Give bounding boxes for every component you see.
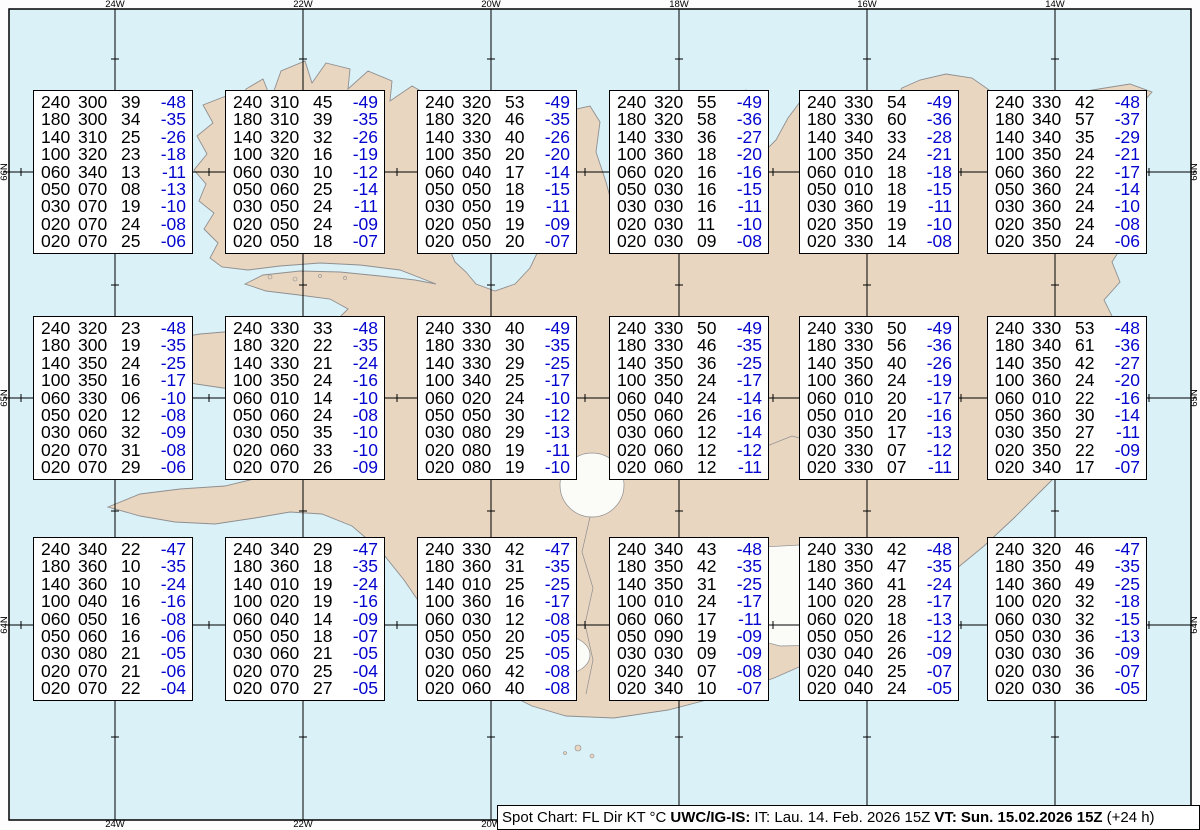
wind-dir-value: 040 bbox=[654, 390, 697, 407]
wind-dir-value: 010 bbox=[844, 390, 887, 407]
fl-value: 020 bbox=[617, 680, 654, 697]
fl-value: 030 bbox=[233, 424, 270, 441]
temperature-value: -20 bbox=[1106, 372, 1140, 389]
spot-row: 03005035-10 bbox=[233, 424, 378, 441]
wind-dir-value: 360 bbox=[462, 593, 505, 610]
fl-value: 030 bbox=[425, 645, 462, 662]
temperature-value: -35 bbox=[536, 558, 570, 575]
wind-speed-value: 09 bbox=[697, 645, 728, 662]
wind-dir-value: 340 bbox=[1032, 111, 1075, 128]
fl-value: 100 bbox=[425, 593, 462, 610]
wind-dir-value: 060 bbox=[654, 611, 697, 628]
spot-row: 10035020-20 bbox=[425, 146, 570, 163]
wind-speed-value: 61 bbox=[1075, 337, 1106, 354]
wind-dir-value: 320 bbox=[78, 146, 121, 163]
wind-dir-value: 030 bbox=[654, 233, 697, 250]
spot-row: 03035027-11 bbox=[995, 424, 1140, 441]
station-data-box: 24033042-4718036031-3514001025-251003601… bbox=[417, 537, 577, 701]
wind-speed-value: 24 bbox=[1075, 146, 1106, 163]
fl-value: 060 bbox=[41, 611, 78, 628]
temperature-value: -21 bbox=[1106, 146, 1140, 163]
temperature-value: -11 bbox=[728, 459, 762, 476]
temperature-value: -17 bbox=[728, 593, 762, 610]
temperature-value: -17 bbox=[918, 593, 952, 610]
temperature-value: -07 bbox=[728, 680, 762, 697]
wind-speed-value: 27 bbox=[313, 680, 344, 697]
wind-speed-value: 14 bbox=[887, 233, 918, 250]
spot-row: 02003009-08 bbox=[617, 233, 762, 250]
fl-value: 180 bbox=[425, 111, 462, 128]
longitude-label-bottom: 22W bbox=[286, 819, 320, 830]
spot-row: 03006012-14 bbox=[617, 424, 762, 441]
wind-speed-value: 20 bbox=[505, 146, 536, 163]
fl-value: 030 bbox=[995, 198, 1032, 215]
wind-dir-value: 330 bbox=[844, 233, 887, 250]
wind-speed-value: 26 bbox=[313, 459, 344, 476]
temperature-value: -11 bbox=[918, 459, 952, 476]
wind-dir-value: 070 bbox=[78, 680, 121, 697]
fl-value: 030 bbox=[617, 645, 654, 662]
wind-dir-value: 020 bbox=[844, 593, 887, 610]
temperature-value: -14 bbox=[728, 390, 762, 407]
fl-value: 100 bbox=[617, 372, 654, 389]
longitude-label-top: 14W bbox=[1038, 0, 1072, 10]
wind-dir-value: 040 bbox=[462, 164, 505, 181]
wind-speed-value: 14 bbox=[313, 611, 344, 628]
wind-dir-value: 350 bbox=[654, 558, 697, 575]
temperature-value: -12 bbox=[344, 164, 378, 181]
wind-dir-value: 070 bbox=[78, 459, 121, 476]
fl-value: 100 bbox=[233, 146, 270, 163]
fl-value: 020 bbox=[41, 233, 78, 250]
fl-value: 020 bbox=[807, 233, 844, 250]
wind-dir-value: 020 bbox=[844, 611, 887, 628]
spot-row: 18030034-35 bbox=[41, 111, 186, 128]
wind-speed-value: 19 bbox=[505, 198, 536, 215]
fl-value: 060 bbox=[807, 164, 844, 181]
wind-dir-value: 330 bbox=[844, 337, 887, 354]
wind-speed-value: 58 bbox=[697, 111, 728, 128]
fl-value: 060 bbox=[425, 164, 462, 181]
temperature-value: -17 bbox=[728, 372, 762, 389]
station-data-box: 24033054-4918033060-3614034033-281003502… bbox=[799, 90, 959, 254]
fl-value: 180 bbox=[425, 337, 462, 354]
temperature-value: -14 bbox=[536, 164, 570, 181]
wind-speed-value: 19 bbox=[121, 198, 152, 215]
spot-row: 10002032-18 bbox=[995, 593, 1140, 610]
fl-value: 060 bbox=[617, 611, 654, 628]
fl-value: 100 bbox=[807, 146, 844, 163]
longitude-label-top: 22W bbox=[286, 0, 320, 10]
temperature-value: -35 bbox=[1106, 558, 1140, 575]
wind-speed-value: 21 bbox=[313, 645, 344, 662]
wind-dir-value: 320 bbox=[270, 337, 313, 354]
wind-dir-value: 050 bbox=[78, 611, 121, 628]
spot-row: 03003016-11 bbox=[617, 198, 762, 215]
wind-speed-value: 22 bbox=[1075, 164, 1106, 181]
temperature-value: -11 bbox=[728, 611, 762, 628]
wind-speed-value: 30 bbox=[505, 337, 536, 354]
temperature-value: -17 bbox=[152, 372, 186, 389]
wind-speed-value: 36 bbox=[1075, 645, 1106, 662]
temperature-value: -05 bbox=[1106, 680, 1140, 697]
wind-dir-value: 040 bbox=[78, 593, 121, 610]
wind-speed-value: 32 bbox=[121, 424, 152, 441]
spot-row: 10035024-21 bbox=[995, 146, 1140, 163]
longitude-label-top: 18W bbox=[662, 0, 696, 10]
station-data-box: 24033033-4818032022-3514033021-241003502… bbox=[225, 316, 385, 480]
wind-dir-value: 020 bbox=[270, 593, 313, 610]
wind-dir-value: 080 bbox=[78, 645, 121, 662]
spot-row: 02006040-08 bbox=[425, 680, 570, 697]
wind-speed-value: 16 bbox=[121, 372, 152, 389]
fl-value: 020 bbox=[807, 680, 844, 697]
spot-row: 06004017-14 bbox=[425, 164, 570, 181]
spot-row: 18030019-35 bbox=[41, 337, 186, 354]
fl-value: 030 bbox=[617, 424, 654, 441]
temperature-value: -35 bbox=[152, 111, 186, 128]
spot-row: 18033046-35 bbox=[617, 337, 762, 354]
wind-speed-value: 16 bbox=[121, 593, 152, 610]
wind-speed-value: 16 bbox=[505, 593, 536, 610]
wind-dir-value: 050 bbox=[270, 198, 313, 215]
wind-dir-value: 070 bbox=[78, 233, 121, 250]
wind-speed-value: 32 bbox=[1075, 593, 1106, 610]
wind-dir-value: 320 bbox=[462, 111, 505, 128]
wind-dir-value: 030 bbox=[462, 611, 505, 628]
wind-speed-value: 10 bbox=[313, 164, 344, 181]
spot-row: 03036019-11 bbox=[807, 198, 952, 215]
caption-suffix: (+24 h) bbox=[1107, 809, 1155, 826]
fl-value: 060 bbox=[995, 164, 1032, 181]
fl-value: 180 bbox=[233, 111, 270, 128]
spot-row: 10035024-16 bbox=[233, 372, 378, 389]
temperature-value: -11 bbox=[536, 198, 570, 215]
wind-dir-value: 040 bbox=[844, 645, 887, 662]
wind-speed-value: 19 bbox=[313, 593, 344, 610]
wind-dir-value: 350 bbox=[270, 372, 313, 389]
wind-speed-value: 25 bbox=[121, 233, 152, 250]
spot-row: 03006032-09 bbox=[41, 424, 186, 441]
wind-speed-value: 18 bbox=[313, 233, 344, 250]
wind-dir-value: 300 bbox=[78, 111, 121, 128]
caption-valid-value: Sun. 15.02.2026 15Z bbox=[961, 809, 1103, 826]
wind-dir-value: 050 bbox=[462, 645, 505, 662]
wind-dir-value: 070 bbox=[270, 459, 313, 476]
spot-row: 18035047-35 bbox=[807, 558, 952, 575]
spot-row: 06004014-09 bbox=[233, 611, 378, 628]
spot-row: 10001024-17 bbox=[617, 593, 762, 610]
wind-speed-value: 34 bbox=[121, 111, 152, 128]
temperature-value: -09 bbox=[344, 459, 378, 476]
latitude-label-left: 64N bbox=[0, 612, 11, 638]
wind-dir-value: 010 bbox=[270, 390, 313, 407]
wind-dir-value: 350 bbox=[78, 372, 121, 389]
fl-value: 030 bbox=[41, 645, 78, 662]
wind-dir-value: 320 bbox=[654, 111, 697, 128]
fl-value: 180 bbox=[807, 337, 844, 354]
wind-dir-value: 360 bbox=[844, 198, 887, 215]
temperature-value: -17 bbox=[536, 372, 570, 389]
fl-value: 180 bbox=[41, 111, 78, 128]
spot-row: 02033007-11 bbox=[807, 459, 952, 476]
wind-dir-value: 350 bbox=[844, 424, 887, 441]
temperature-value: -18 bbox=[152, 146, 186, 163]
fl-value: 100 bbox=[995, 146, 1032, 163]
wind-speed-value: 28 bbox=[887, 593, 918, 610]
wind-dir-value: 350 bbox=[654, 372, 697, 389]
temperature-value: -09 bbox=[344, 611, 378, 628]
wind-dir-value: 020 bbox=[462, 390, 505, 407]
wind-speed-value: 25 bbox=[505, 645, 536, 662]
wind-speed-value: 16 bbox=[313, 146, 344, 163]
latitude-label-right: 66N bbox=[1189, 159, 1200, 185]
fl-value: 060 bbox=[807, 611, 844, 628]
spot-row: 10004016-16 bbox=[41, 593, 186, 610]
wind-dir-value: 360 bbox=[844, 372, 887, 389]
latitude-label-right: 65N bbox=[1189, 385, 1200, 411]
wind-dir-value: 020 bbox=[1032, 593, 1075, 610]
fl-value: 020 bbox=[233, 233, 270, 250]
station-data-box: 24032023-4818030019-3514035024-251003501… bbox=[33, 316, 193, 480]
temperature-value: -10 bbox=[536, 390, 570, 407]
wind-dir-value: 040 bbox=[844, 680, 887, 697]
station-data-box: 24034043-4818035042-3514035031-251000102… bbox=[609, 537, 769, 701]
spot-row: 06001018-18 bbox=[807, 164, 952, 181]
wind-dir-value: 360 bbox=[462, 558, 505, 575]
wind-speed-value: 24 bbox=[697, 593, 728, 610]
caption-issued: IT: Lau. 14. Feb. 2026 15Z bbox=[754, 809, 930, 826]
temperature-value: -07 bbox=[1106, 459, 1140, 476]
temperature-value: -11 bbox=[728, 198, 762, 215]
spot-row: 02035024-06 bbox=[995, 233, 1140, 250]
temperature-value: -07 bbox=[344, 233, 378, 250]
fl-value: 180 bbox=[41, 558, 78, 575]
temperature-value: -16 bbox=[344, 593, 378, 610]
wind-dir-value: 030 bbox=[654, 645, 697, 662]
wind-speed-value: 10 bbox=[697, 680, 728, 697]
fl-value: 020 bbox=[233, 680, 270, 697]
fl-value: 100 bbox=[425, 372, 462, 389]
temperature-value: -04 bbox=[152, 680, 186, 697]
station-data-box: 24033050-4918033056-3614035040-261003602… bbox=[799, 316, 959, 480]
spot-row: 06002016-16 bbox=[617, 164, 762, 181]
spot-row: 10035024-21 bbox=[807, 146, 952, 163]
wind-speed-value: 06 bbox=[121, 390, 152, 407]
fl-value: 030 bbox=[233, 198, 270, 215]
wind-speed-value: 12 bbox=[697, 424, 728, 441]
temperature-value: -06 bbox=[1106, 233, 1140, 250]
wind-speed-value: 31 bbox=[505, 558, 536, 575]
station-data-box: 24033042-4818034057-3714034035-291003502… bbox=[987, 90, 1147, 254]
wind-dir-value: 070 bbox=[270, 680, 313, 697]
wind-speed-value: 19 bbox=[887, 198, 918, 215]
temperature-value: -35 bbox=[152, 337, 186, 354]
temperature-value: -37 bbox=[1106, 111, 1140, 128]
wind-dir-value: 350 bbox=[1032, 146, 1075, 163]
latitude-label-left: 65N bbox=[0, 385, 11, 411]
temperature-value: -11 bbox=[344, 198, 378, 215]
temperature-value: -10 bbox=[344, 424, 378, 441]
station-data-box: 24033053-4818034061-3614035042-271003602… bbox=[987, 316, 1147, 480]
wind-dir-value: 340 bbox=[462, 372, 505, 389]
station-data-box: 24030039-4818030034-3514031025-261003202… bbox=[33, 90, 193, 254]
wind-speed-value: 24 bbox=[1075, 198, 1106, 215]
wind-speed-value: 12 bbox=[697, 459, 728, 476]
wind-dir-value: 300 bbox=[78, 337, 121, 354]
spot-row: 18034061-36 bbox=[995, 337, 1140, 354]
temperature-value: -05 bbox=[344, 680, 378, 697]
temperature-value: -17 bbox=[536, 593, 570, 610]
spot-row: 18033060-36 bbox=[807, 111, 952, 128]
temperature-value: -05 bbox=[918, 680, 952, 697]
temperature-value: -18 bbox=[1106, 593, 1140, 610]
fl-value: 100 bbox=[807, 372, 844, 389]
wind-dir-value: 020 bbox=[654, 164, 697, 181]
spot-row: 10035016-17 bbox=[41, 372, 186, 389]
temperature-value: -15 bbox=[1106, 611, 1140, 628]
wind-speed-value: 13 bbox=[121, 164, 152, 181]
spot-row: 03003036-09 bbox=[995, 645, 1140, 662]
wind-speed-value: 36 bbox=[1075, 680, 1106, 697]
wind-dir-value: 350 bbox=[1032, 424, 1075, 441]
latitude-label-left: 66N bbox=[0, 159, 11, 185]
temperature-value: -09 bbox=[1106, 645, 1140, 662]
wind-speed-value: 22 bbox=[313, 337, 344, 354]
wind-speed-value: 27 bbox=[1075, 424, 1106, 441]
wind-speed-value: 60 bbox=[887, 111, 918, 128]
wind-speed-value: 24 bbox=[1075, 372, 1106, 389]
fl-value: 180 bbox=[617, 337, 654, 354]
spot-row: 06033006-10 bbox=[41, 390, 186, 407]
fl-value: 020 bbox=[995, 680, 1032, 697]
fl-value: 180 bbox=[995, 558, 1032, 575]
spot-row: 02007029-06 bbox=[41, 459, 186, 476]
wind-speed-value: 23 bbox=[121, 146, 152, 163]
wind-dir-value: 060 bbox=[462, 680, 505, 697]
wind-speed-value: 14 bbox=[313, 390, 344, 407]
spot-row: 06034013-11 bbox=[41, 164, 186, 181]
wind-speed-value: 18 bbox=[887, 164, 918, 181]
wind-speed-value: 20 bbox=[505, 233, 536, 250]
wind-dir-value: 030 bbox=[1032, 680, 1075, 697]
fl-value: 180 bbox=[233, 558, 270, 575]
fl-value: 060 bbox=[233, 164, 270, 181]
wind-speed-value: 10 bbox=[121, 558, 152, 575]
wind-dir-value: 360 bbox=[1032, 164, 1075, 181]
fl-value: 030 bbox=[41, 424, 78, 441]
spot-row: 10036018-20 bbox=[617, 146, 762, 163]
station-data-box: 24032053-4918032046-3514033040-261003502… bbox=[417, 90, 577, 254]
wind-speed-value: 39 bbox=[313, 111, 344, 128]
wind-speed-value: 21 bbox=[121, 645, 152, 662]
fl-value: 030 bbox=[233, 645, 270, 662]
wind-speed-value: 56 bbox=[887, 337, 918, 354]
wind-speed-value: 16 bbox=[697, 198, 728, 215]
wind-speed-value: 29 bbox=[121, 459, 152, 476]
spot-row: 02034017-07 bbox=[995, 459, 1140, 476]
fl-value: 030 bbox=[617, 198, 654, 215]
wind-speed-value: 49 bbox=[1075, 558, 1106, 575]
spot-row: 18036010-35 bbox=[41, 558, 186, 575]
spot-row: 10036024-19 bbox=[807, 372, 952, 389]
spot-row: 06002024-10 bbox=[425, 390, 570, 407]
fl-value: 020 bbox=[995, 233, 1032, 250]
wind-dir-value: 360 bbox=[654, 146, 697, 163]
spot-row: 02004024-05 bbox=[807, 680, 952, 697]
wind-speed-value: 25 bbox=[505, 372, 536, 389]
latitude-label-right: 64N bbox=[1189, 612, 1200, 638]
spot-row: 10002028-17 bbox=[807, 593, 952, 610]
temperature-value: -06 bbox=[152, 459, 186, 476]
fl-value: 060 bbox=[995, 390, 1032, 407]
fl-value: 020 bbox=[995, 459, 1032, 476]
wind-dir-value: 050 bbox=[270, 233, 313, 250]
wind-dir-value: 050 bbox=[270, 424, 313, 441]
spot-row: 06001022-16 bbox=[995, 390, 1140, 407]
temperature-value: -16 bbox=[728, 164, 762, 181]
longitude-label-top: 24W bbox=[98, 0, 132, 10]
fl-value: 030 bbox=[807, 198, 844, 215]
wind-speed-value: 29 bbox=[505, 424, 536, 441]
fl-value: 100 bbox=[41, 372, 78, 389]
fl-value: 100 bbox=[995, 372, 1032, 389]
fl-value: 100 bbox=[41, 146, 78, 163]
fl-value: 100 bbox=[41, 593, 78, 610]
spot-row: 06001014-10 bbox=[233, 390, 378, 407]
longitude-label-top: 16W bbox=[850, 0, 884, 10]
temperature-value: -35 bbox=[728, 558, 762, 575]
fl-value: 100 bbox=[425, 146, 462, 163]
spot-row: 02006012-11 bbox=[617, 459, 762, 476]
spot-row: 10032023-18 bbox=[41, 146, 186, 163]
wind-dir-value: 360 bbox=[1032, 372, 1075, 389]
spot-row: 06002018-13 bbox=[807, 611, 952, 628]
wind-dir-value: 030 bbox=[1032, 611, 1075, 628]
spot-row: 03006021-05 bbox=[233, 645, 378, 662]
spot-row: 06036022-17 bbox=[995, 164, 1140, 181]
spot-row: 18035049-35 bbox=[995, 558, 1140, 575]
spot-row: 03008029-13 bbox=[425, 424, 570, 441]
temperature-value: -08 bbox=[728, 233, 762, 250]
temperature-value: -19 bbox=[918, 372, 952, 389]
wind-dir-value: 360 bbox=[270, 558, 313, 575]
temperature-value: -10 bbox=[536, 459, 570, 476]
station-data-box: 24034022-4718036010-3514036010-241000401… bbox=[33, 537, 193, 701]
fl-value: 180 bbox=[617, 111, 654, 128]
temperature-value: -19 bbox=[344, 146, 378, 163]
temperature-value: -36 bbox=[1106, 337, 1140, 354]
wind-speed-value: 12 bbox=[505, 611, 536, 628]
fl-value: 180 bbox=[995, 337, 1032, 354]
wind-speed-value: 32 bbox=[1075, 611, 1106, 628]
longitude-label-bottom: 24W bbox=[98, 819, 132, 830]
station-data-box: 24033050-4918033046-3514035036-251003502… bbox=[609, 316, 769, 480]
temperature-value: -36 bbox=[918, 337, 952, 354]
temperature-value: -35 bbox=[918, 558, 952, 575]
temperature-value: -05 bbox=[152, 645, 186, 662]
spot-row: 10036024-20 bbox=[995, 372, 1140, 389]
temperature-value: -09 bbox=[152, 424, 186, 441]
wind-speed-value: 17 bbox=[1075, 459, 1106, 476]
caption-valid-label: VT: bbox=[934, 809, 957, 826]
spot-row: 03035017-13 bbox=[807, 424, 952, 441]
spot-row: 03036024-10 bbox=[995, 198, 1140, 215]
spot-row: 18032022-35 bbox=[233, 337, 378, 354]
spot-row: 03005025-05 bbox=[425, 645, 570, 662]
fl-value: 020 bbox=[807, 459, 844, 476]
spot-row: 02008019-10 bbox=[425, 459, 570, 476]
